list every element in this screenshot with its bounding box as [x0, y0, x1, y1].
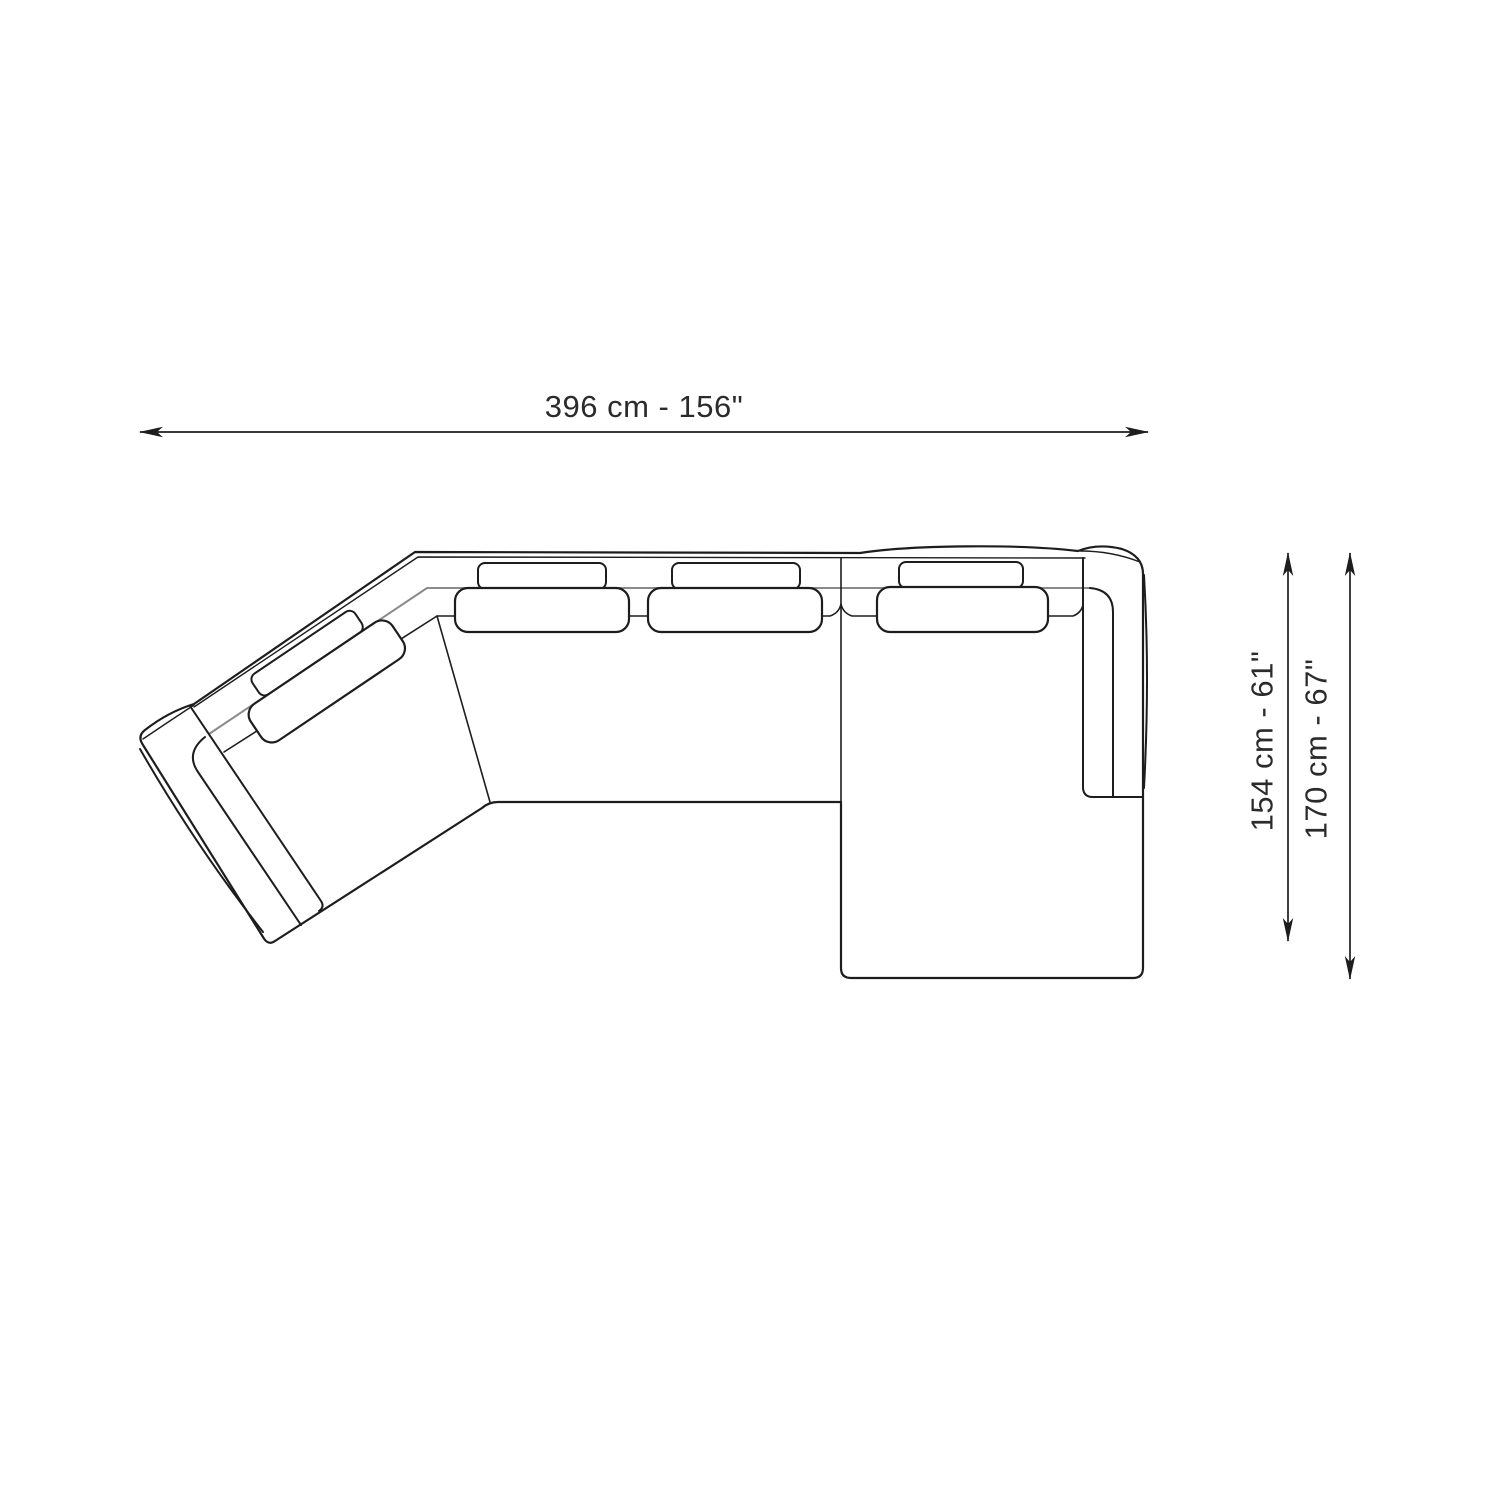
back-cushion — [877, 587, 1048, 632]
depth-inner-dimension-label: 154 cm - 61" — [1245, 651, 1280, 832]
back-cushion — [455, 588, 629, 632]
right-armrest — [1083, 558, 1147, 797]
sofa-dimension-diagram: 396 cm - 156" 154 cm - 61" 170 cm - 67" — [0, 0, 1500, 1500]
width-dimension-label: 396 cm - 156" — [545, 389, 743, 424]
back-cushions — [244, 587, 1048, 747]
headrest-cushion — [672, 563, 800, 589]
depth-outer-dimension-label: 170 cm - 67" — [1299, 659, 1334, 840]
headrest-cushion — [899, 562, 1023, 588]
left-arm-cap-seam — [143, 705, 194, 739]
drawing-canvas: 396 cm - 156" 154 cm - 61" 170 cm - 67" — [0, 0, 1500, 1500]
back-cushion — [648, 588, 822, 632]
headrest-cushion — [478, 563, 606, 589]
sofa-drawing — [140, 546, 1147, 978]
left-armrest — [140, 706, 323, 932]
corner-module-seam — [437, 616, 490, 802]
